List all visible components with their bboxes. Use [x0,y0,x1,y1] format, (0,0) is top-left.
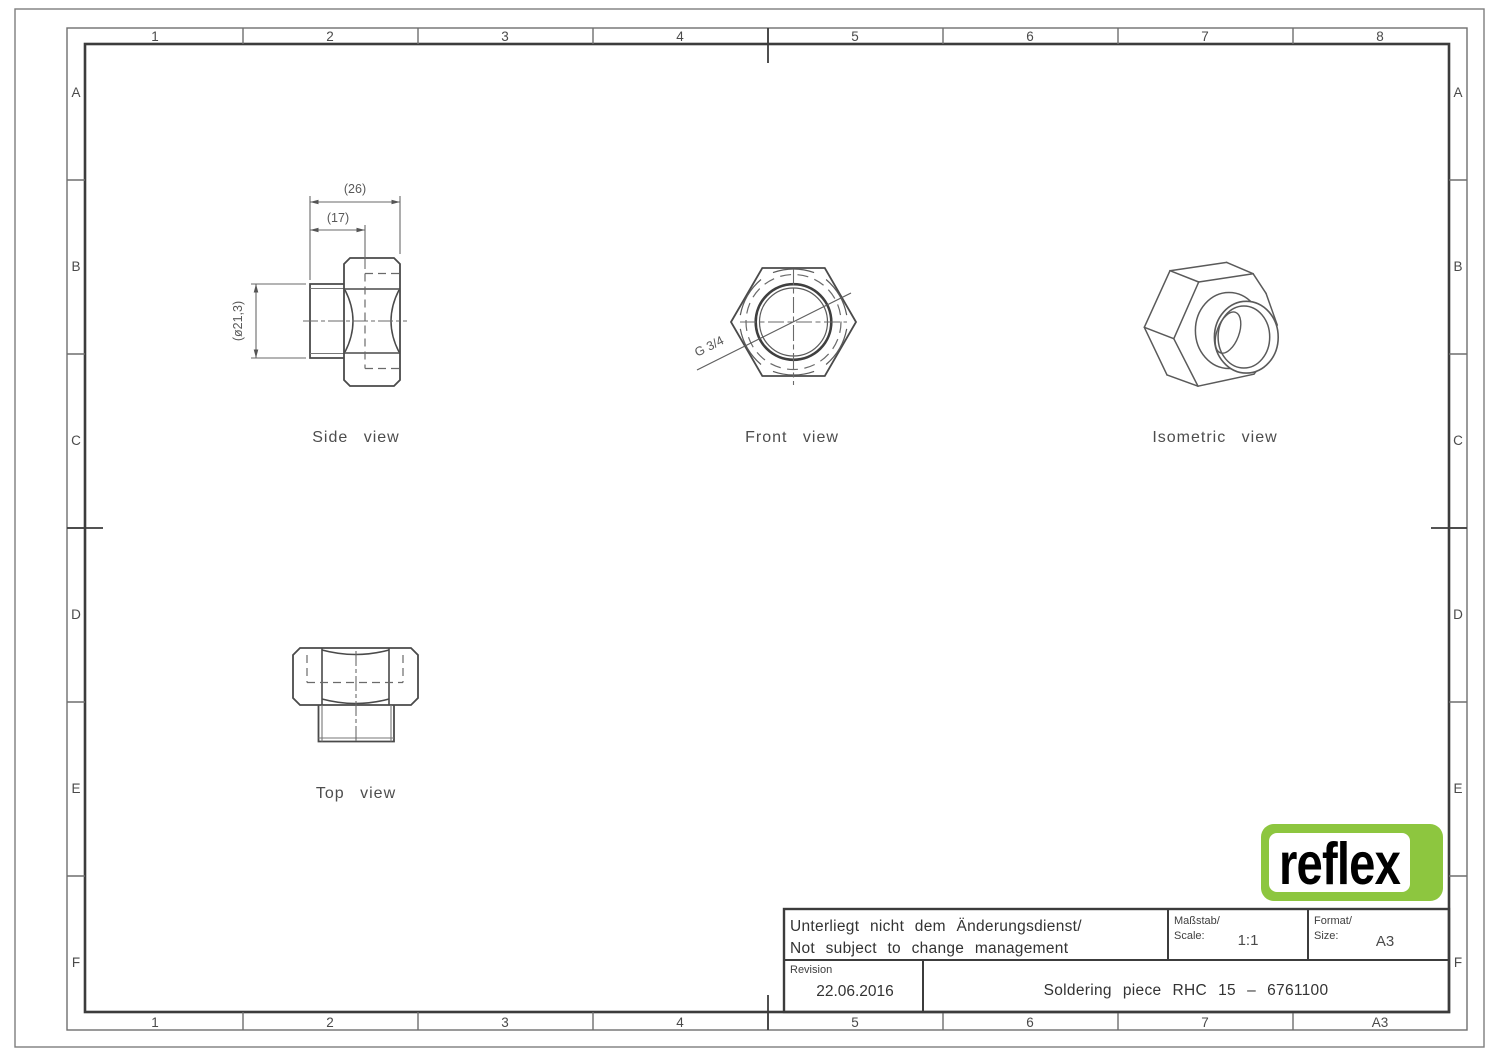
svg-text:(17): (17) [327,211,349,225]
svg-text:A3: A3 [1376,933,1394,950]
svg-text:C: C [71,433,81,448]
svg-text:Maßstab/: Maßstab/ [1174,915,1221,927]
svg-text:7: 7 [1201,29,1209,44]
svg-text:B: B [1453,259,1462,274]
svg-text:7: 7 [1201,1015,1209,1030]
svg-text:6: 6 [1026,1015,1034,1030]
svg-text:D: D [71,607,81,622]
svg-text:4: 4 [676,29,684,44]
svg-text:(26): (26) [344,182,366,196]
svg-text:Front view: Front view [745,429,839,446]
svg-text:Isometric view: Isometric view [1152,429,1277,446]
svg-text:E: E [71,781,80,796]
svg-text:(ø21,3): (ø21,3) [231,301,245,341]
svg-text:4: 4 [676,1015,684,1030]
svg-text:E: E [1453,781,1462,796]
svg-text:1: 1 [151,1015,159,1030]
svg-text:A3: A3 [1372,1015,1389,1030]
svg-text:D: D [1453,607,1463,622]
svg-text:Size:: Size: [1314,930,1338,942]
svg-text:Soldering piece RHC 15 – 67611: Soldering piece RHC 15 – 6761100 [1044,982,1329,999]
svg-text:Side view: Side view [312,429,399,446]
svg-text:2: 2 [326,29,334,44]
svg-text:5: 5 [851,1015,859,1030]
svg-text:3: 3 [501,1015,509,1030]
svg-text:F: F [72,955,80,970]
svg-text:3: 3 [501,29,509,44]
svg-text:B: B [71,259,80,274]
svg-text:5: 5 [851,29,859,44]
svg-text:22.06.2016: 22.06.2016 [816,983,894,1000]
svg-text:Format/: Format/ [1314,915,1353,927]
svg-text:2: 2 [326,1015,334,1030]
svg-text:reflex: reflex [1279,832,1401,897]
svg-text:C: C [1453,433,1463,448]
svg-text:8: 8 [1376,29,1384,44]
svg-text:Top view: Top view [316,785,396,802]
svg-text:Scale:: Scale: [1174,930,1205,942]
svg-text:A: A [1453,85,1462,100]
svg-text:A: A [71,85,80,100]
svg-text:F: F [1454,955,1462,970]
svg-text:1:1: 1:1 [1238,932,1259,949]
svg-text:1: 1 [151,29,159,44]
svg-text:Not subject to change manageme: Not subject to change management [790,940,1069,957]
svg-text:6: 6 [1026,29,1034,44]
svg-text:Unterliegt nicht dem Änderungs: Unterliegt nicht dem Änderungsdienst/ [790,918,1082,935]
svg-text:Revision: Revision [790,964,832,976]
